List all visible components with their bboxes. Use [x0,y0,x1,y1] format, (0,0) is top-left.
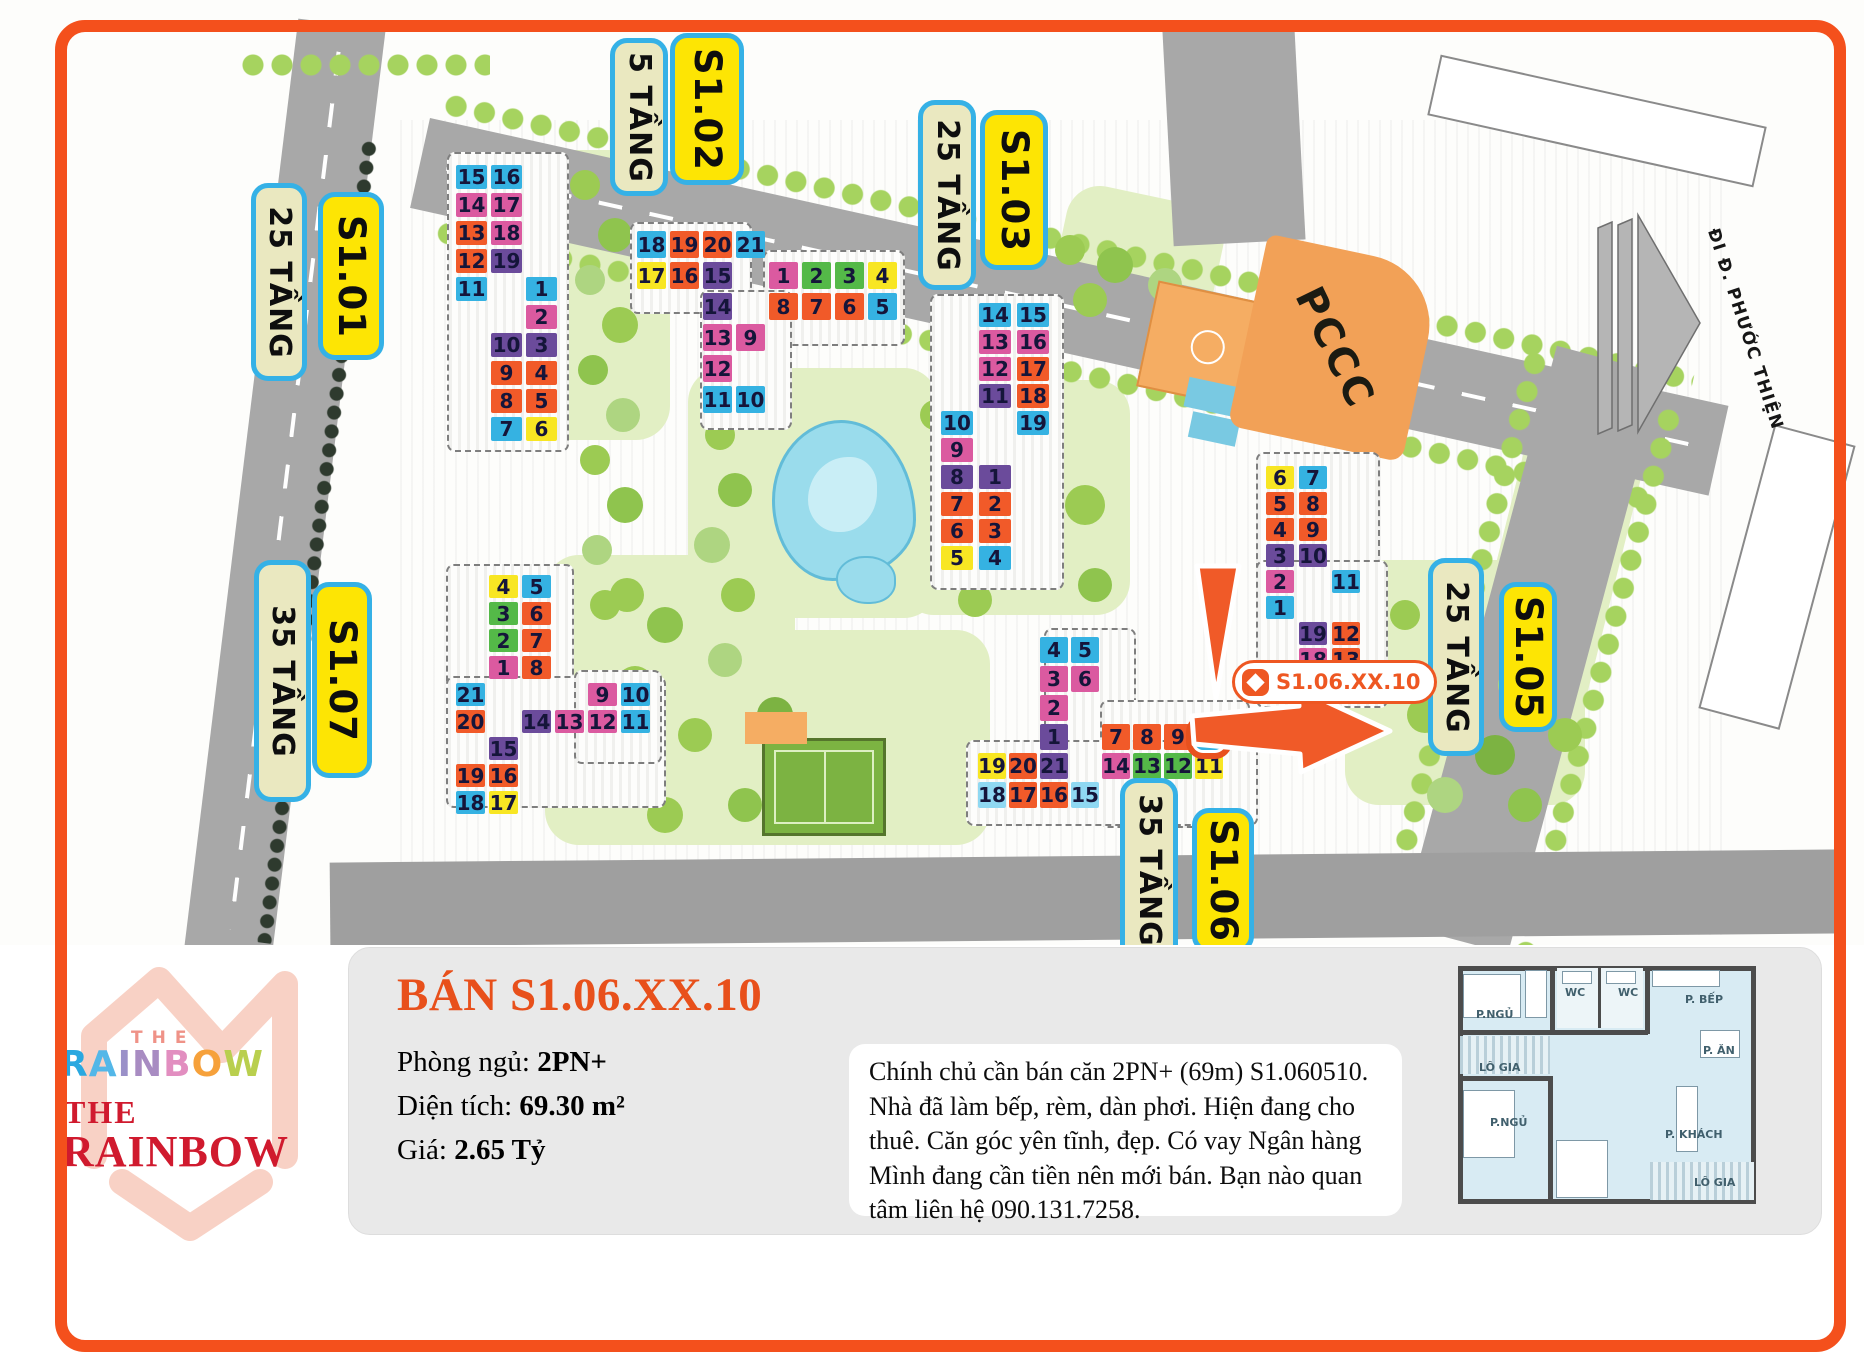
logo-letter: W [223,1044,264,1085]
unit-s102-12[interactable]: 12 [703,355,732,382]
unit-s105-3[interactable]: 3 [1266,544,1294,567]
unit-s102-6[interactable]: 6 [835,293,864,320]
unit-s101-16[interactable]: 16 [491,165,522,189]
unit-s106-18[interactable]: 18 [978,782,1006,808]
small-pond [836,556,896,604]
logo-rainbow-red: RAINBOW [62,1126,289,1177]
unit-s103-15[interactable]: 15 [1017,303,1049,327]
unit-s103-17[interactable]: 17 [1017,357,1049,381]
brand-icon [1242,669,1269,696]
unit-s103-8[interactable]: 8 [941,465,973,489]
building-s101: 15161417131812191112103948576 [456,165,557,441]
unit-s102-17[interactable]: 17 [637,262,666,289]
unit-s101-3[interactable]: 3 [526,333,557,357]
field-price-label: Giá: [397,1134,454,1166]
wc-fixture [1606,971,1636,984]
unit-s103-14[interactable]: 14 [979,303,1011,327]
unit-s103-18[interactable]: 18 [1017,384,1049,408]
unit-s101-2[interactable]: 2 [526,305,557,329]
unit-s106-7[interactable]: 7 [1102,724,1130,750]
label-text: 35 TẦNG [1132,794,1167,945]
unit-s106-10[interactable]: 10 [1195,724,1223,750]
unit-s102-9[interactable]: 9 [736,324,765,351]
field-price-value: 2.65 Tỷ [454,1134,545,1166]
unit-s106-21[interactable]: 21 [1040,753,1068,779]
unit-s103-3[interactable]: 3 [979,519,1011,543]
unit-s103-6[interactable]: 6 [941,519,973,543]
label-text: 25 TẦNG [262,206,297,359]
building-label-S1-03: S1.03 [980,110,1048,270]
kitchen-counter [1652,970,1720,987]
road-northeast [1162,25,1305,247]
unit-s106-17[interactable]: 17 [1009,782,1037,808]
unit-s107-1[interactable]: 1 [489,656,518,679]
unit-s103-1[interactable]: 1 [979,465,1011,489]
logo-letter: N [132,1044,163,1085]
unit-s103-12[interactable]: 12 [979,357,1011,381]
room-label: P.NGỦ [1490,1116,1527,1129]
road-outline [1427,55,1767,188]
bed [1556,1140,1608,1198]
unit-s103-5[interactable]: 5 [941,546,973,570]
logo-rainbow-colored: RAINBOW [60,1044,264,1085]
unit-s107-4[interactable]: 4 [489,575,518,598]
unit-s102-19[interactable]: 19 [670,231,699,258]
field-area: Diện tích: 69.30 m² [397,1090,625,1123]
unit-s103-19[interactable]: 19 [1017,411,1049,435]
unit-s107-2[interactable]: 2 [489,629,518,652]
label-text: 25 TẦNG [930,119,965,272]
field-area-value: 69.30 m² [519,1090,624,1122]
unit-s105-8[interactable]: 8 [1299,492,1327,515]
floors-label-25-TẦNG: 25 TẦNG [251,183,307,381]
field-area-label: Diện tích: [397,1090,519,1122]
unit-s102-7[interactable]: 7 [802,293,831,320]
field-bedrooms-label: Phòng ngủ: [397,1046,537,1078]
unit-s105-9[interactable]: 9 [1299,518,1327,541]
unit-s107-15[interactable]: 15 [489,737,518,760]
logo-letter: A [89,1044,118,1085]
building-label-S1-06: S1.06 [1192,808,1254,945]
unit-s106-3[interactable]: 3 [1040,666,1068,692]
floors-label-35-TẦNG: 35 TẦNG [1120,778,1178,945]
unit-s102-4[interactable]: 4 [868,262,897,289]
floors-label-25-TẦNG: 25 TẦNG [1428,558,1484,756]
unit-s105-4[interactable]: 4 [1266,518,1294,541]
tree-cluster [570,170,600,200]
wc-fixture [1562,971,1592,984]
unit-s103-11[interactable]: 11 [979,384,1011,408]
unit-s106-13[interactable]: 13 [1133,753,1161,779]
label-text: 25 TẦNG [1439,581,1474,734]
unit-s103-4[interactable]: 4 [979,546,1011,570]
tree-cluster [1390,600,1420,630]
floors-label-5-TẦNG: 5 TẦNG [610,38,668,196]
unit-s101-18[interactable]: 18 [491,221,522,245]
unit-s107-21[interactable]: 21 [456,683,485,706]
unit-s102-10[interactable]: 10 [736,386,765,413]
logo-letter: R [60,1044,89,1085]
building-s103: 14151316121711181019981726354 [941,303,1049,570]
unit-s107-11[interactable]: 11 [621,710,650,733]
unit-s107-14[interactable]: 14 [522,710,551,733]
unit-s106-15[interactable]: 15 [1071,782,1099,808]
unit-s107-17[interactable]: 17 [489,791,518,814]
unit-s106-12[interactable]: 12 [1164,753,1192,779]
unit-s101-4[interactable]: 4 [526,361,557,385]
unit-s106-5[interactable]: 5 [1071,637,1099,663]
unit-s106-1[interactable]: 1 [1040,724,1068,750]
unit-s102-3[interactable]: 3 [835,262,864,289]
unit-s107-7[interactable]: 7 [522,629,551,652]
building-s106: 453621789101920211413121118171615 [978,637,1223,808]
label-text: S1.01 [330,215,373,338]
logo-letter: B [163,1044,191,1085]
unit-s106-9[interactable]: 9 [1164,724,1192,750]
unit-s107-3[interactable]: 3 [489,602,518,625]
unit-s106-8[interactable]: 8 [1133,724,1161,750]
unit-s102-16[interactable]: 16 [670,262,699,289]
building-label-S1-01: S1.01 [318,192,384,360]
floors-label-25-TẦNG: 25 TẦNG [918,100,976,290]
sofa [1676,1086,1698,1152]
room-label: P. BẾP [1685,993,1723,1006]
pccc-label: PCCC [1286,280,1384,416]
unit-s101-6[interactable]: 6 [526,417,557,441]
unit-s106-16[interactable]: 16 [1040,782,1068,808]
building-s102: 181920211716151234148765139121110 [637,231,897,413]
unit-s101-17[interactable]: 17 [491,193,522,217]
unit-s105-10[interactable]: 10 [1299,544,1327,567]
street-label: ĐI Đ. PHƯỚC THIỆN [1703,226,1787,433]
unit-s107-10[interactable]: 10 [621,683,650,706]
unit-s105-11[interactable]: 11 [1332,570,1360,593]
unit-s101-1[interactable]: 1 [526,277,557,301]
tennis-court [762,738,886,836]
unit-s107-18[interactable]: 18 [456,791,485,814]
unit-s107-20[interactable]: 20 [456,710,485,733]
unit-s106-11[interactable]: 11 [1195,753,1223,779]
field-bedrooms: Phòng ngủ: 2PN+ [397,1046,607,1079]
building-label-S1-05: S1.05 [1499,582,1557,732]
unit-s101-11[interactable]: 11 [456,277,487,301]
small-court [745,712,807,744]
unit-s103-2[interactable]: 2 [979,492,1011,516]
unit-s105-1[interactable]: 1 [1266,596,1294,619]
unit-s106-4[interactable]: 4 [1040,637,1068,663]
unit-s102-14[interactable]: 14 [703,293,732,320]
unit-s102-11[interactable]: 11 [703,386,732,413]
listing-description: Chính chủ cần bán căn 2PN+ (69m) S1.0605… [849,1044,1402,1216]
unit-s101-7[interactable]: 7 [491,417,522,441]
wardrobe [1525,970,1547,1018]
field-bedrooms-value: 2PN+ [537,1046,607,1078]
unit-s102-18[interactable]: 18 [637,231,666,258]
unit-s106-19[interactable]: 19 [978,753,1006,779]
field-price: Giá: 2.65 Tỷ [397,1134,546,1167]
unit-s101-5[interactable]: 5 [526,389,557,413]
site-map: PCCC ĐI Đ. PHƯỚC THIỆN 15161417131812191… [0,0,1864,945]
unit-s101-10[interactable]: 10 [491,333,522,357]
listing-title: BÁN S1.06.XX.10 [397,968,762,1022]
unit-s107-19[interactable]: 19 [456,764,485,787]
unit-s101-8[interactable]: 8 [491,389,522,413]
unit-s105-2[interactable]: 2 [1266,570,1294,593]
unit-s102-8[interactable]: 8 [769,293,798,320]
unit-s105-12[interactable]: 12 [1332,622,1360,645]
label-text: S1.07 [321,619,364,742]
unit-s107-16[interactable]: 16 [489,764,518,787]
label-text: 5 TẦNG [622,52,657,183]
unit-s103-9[interactable]: 9 [941,438,973,462]
label-text: S1.03 [993,129,1036,252]
unit-s105-19[interactable]: 19 [1299,622,1327,645]
unit-s107-5[interactable]: 5 [522,575,551,598]
unit-s106-2[interactable]: 2 [1040,695,1068,721]
unit-s101-14[interactable]: 14 [456,193,487,217]
room-label: WC [1565,986,1585,999]
unit-tooltip: S1.06.XX.10 [1232,660,1437,704]
unit-s107-13[interactable]: 13 [555,710,584,733]
unit-s102-1[interactable]: 1 [769,262,798,289]
unit-s103-13[interactable]: 13 [979,330,1011,354]
unit-s103-10[interactable]: 10 [941,411,973,435]
unit-tooltip-text: S1.06.XX.10 [1276,670,1421,694]
label-text: 35 TẦNG [265,605,300,758]
unit-s101-13[interactable]: 13 [456,221,487,245]
unit-s102-5[interactable]: 5 [868,293,897,320]
unit-s101-15[interactable]: 15 [456,165,487,189]
floors-label-35-TẦNG: 35 TẦNG [254,560,311,802]
tree-cluster [1055,235,1085,265]
unit-s105-6[interactable]: 6 [1266,466,1294,489]
unit-s101-12[interactable]: 12 [456,249,487,273]
room-label: LÔ GIA [1479,1061,1520,1074]
unit-s101-9[interactable]: 9 [491,361,522,385]
label-text: S1.05 [1507,596,1550,719]
unit-s103-16[interactable]: 16 [1017,330,1049,354]
unit-s107-6[interactable]: 6 [522,602,551,625]
unit-s106-20[interactable]: 20 [1009,753,1037,779]
unit-s102-13[interactable]: 13 [703,324,732,351]
road-south [330,849,1846,945]
unit-s102-2[interactable]: 2 [802,262,831,289]
unit-s102-20[interactable]: 20 [703,231,732,258]
room-label: P. ĂN [1703,1044,1735,1057]
unit-s106-14[interactable]: 14 [1102,753,1130,779]
label-text: S1.06 [1202,819,1245,942]
unit-s102-15[interactable]: 15 [703,262,732,289]
room-label: P. KHÁCH [1665,1128,1723,1141]
building-s107: 453627182191020141312111519161817 [456,575,650,814]
unit-s102-21[interactable]: 21 [736,231,765,258]
tree-row [240,52,490,78]
logo-letter: I [118,1044,132,1085]
room-label: WC [1618,986,1638,999]
unit-s106-6[interactable]: 6 [1071,666,1099,692]
unit-s105-5[interactable]: 5 [1266,492,1294,515]
road-outline [1698,424,1855,730]
unit-s107-8[interactable]: 8 [522,656,551,679]
unit-s107-9[interactable]: 9 [588,683,617,706]
unit-s101-19[interactable]: 19 [491,249,522,273]
building-label-S1-07: S1.07 [312,582,372,778]
label-text: S1.02 [686,48,729,171]
building-label-S1-02: S1.02 [670,33,744,185]
logo-letter: O [192,1044,224,1085]
unit-s105-7[interactable]: 7 [1299,466,1327,489]
room-label: LÔ GIA [1694,1176,1735,1189]
unit-s107-12[interactable]: 12 [588,710,617,733]
unit-s103-7[interactable]: 7 [941,492,973,516]
room-label: P.NGỦ [1476,1008,1513,1021]
